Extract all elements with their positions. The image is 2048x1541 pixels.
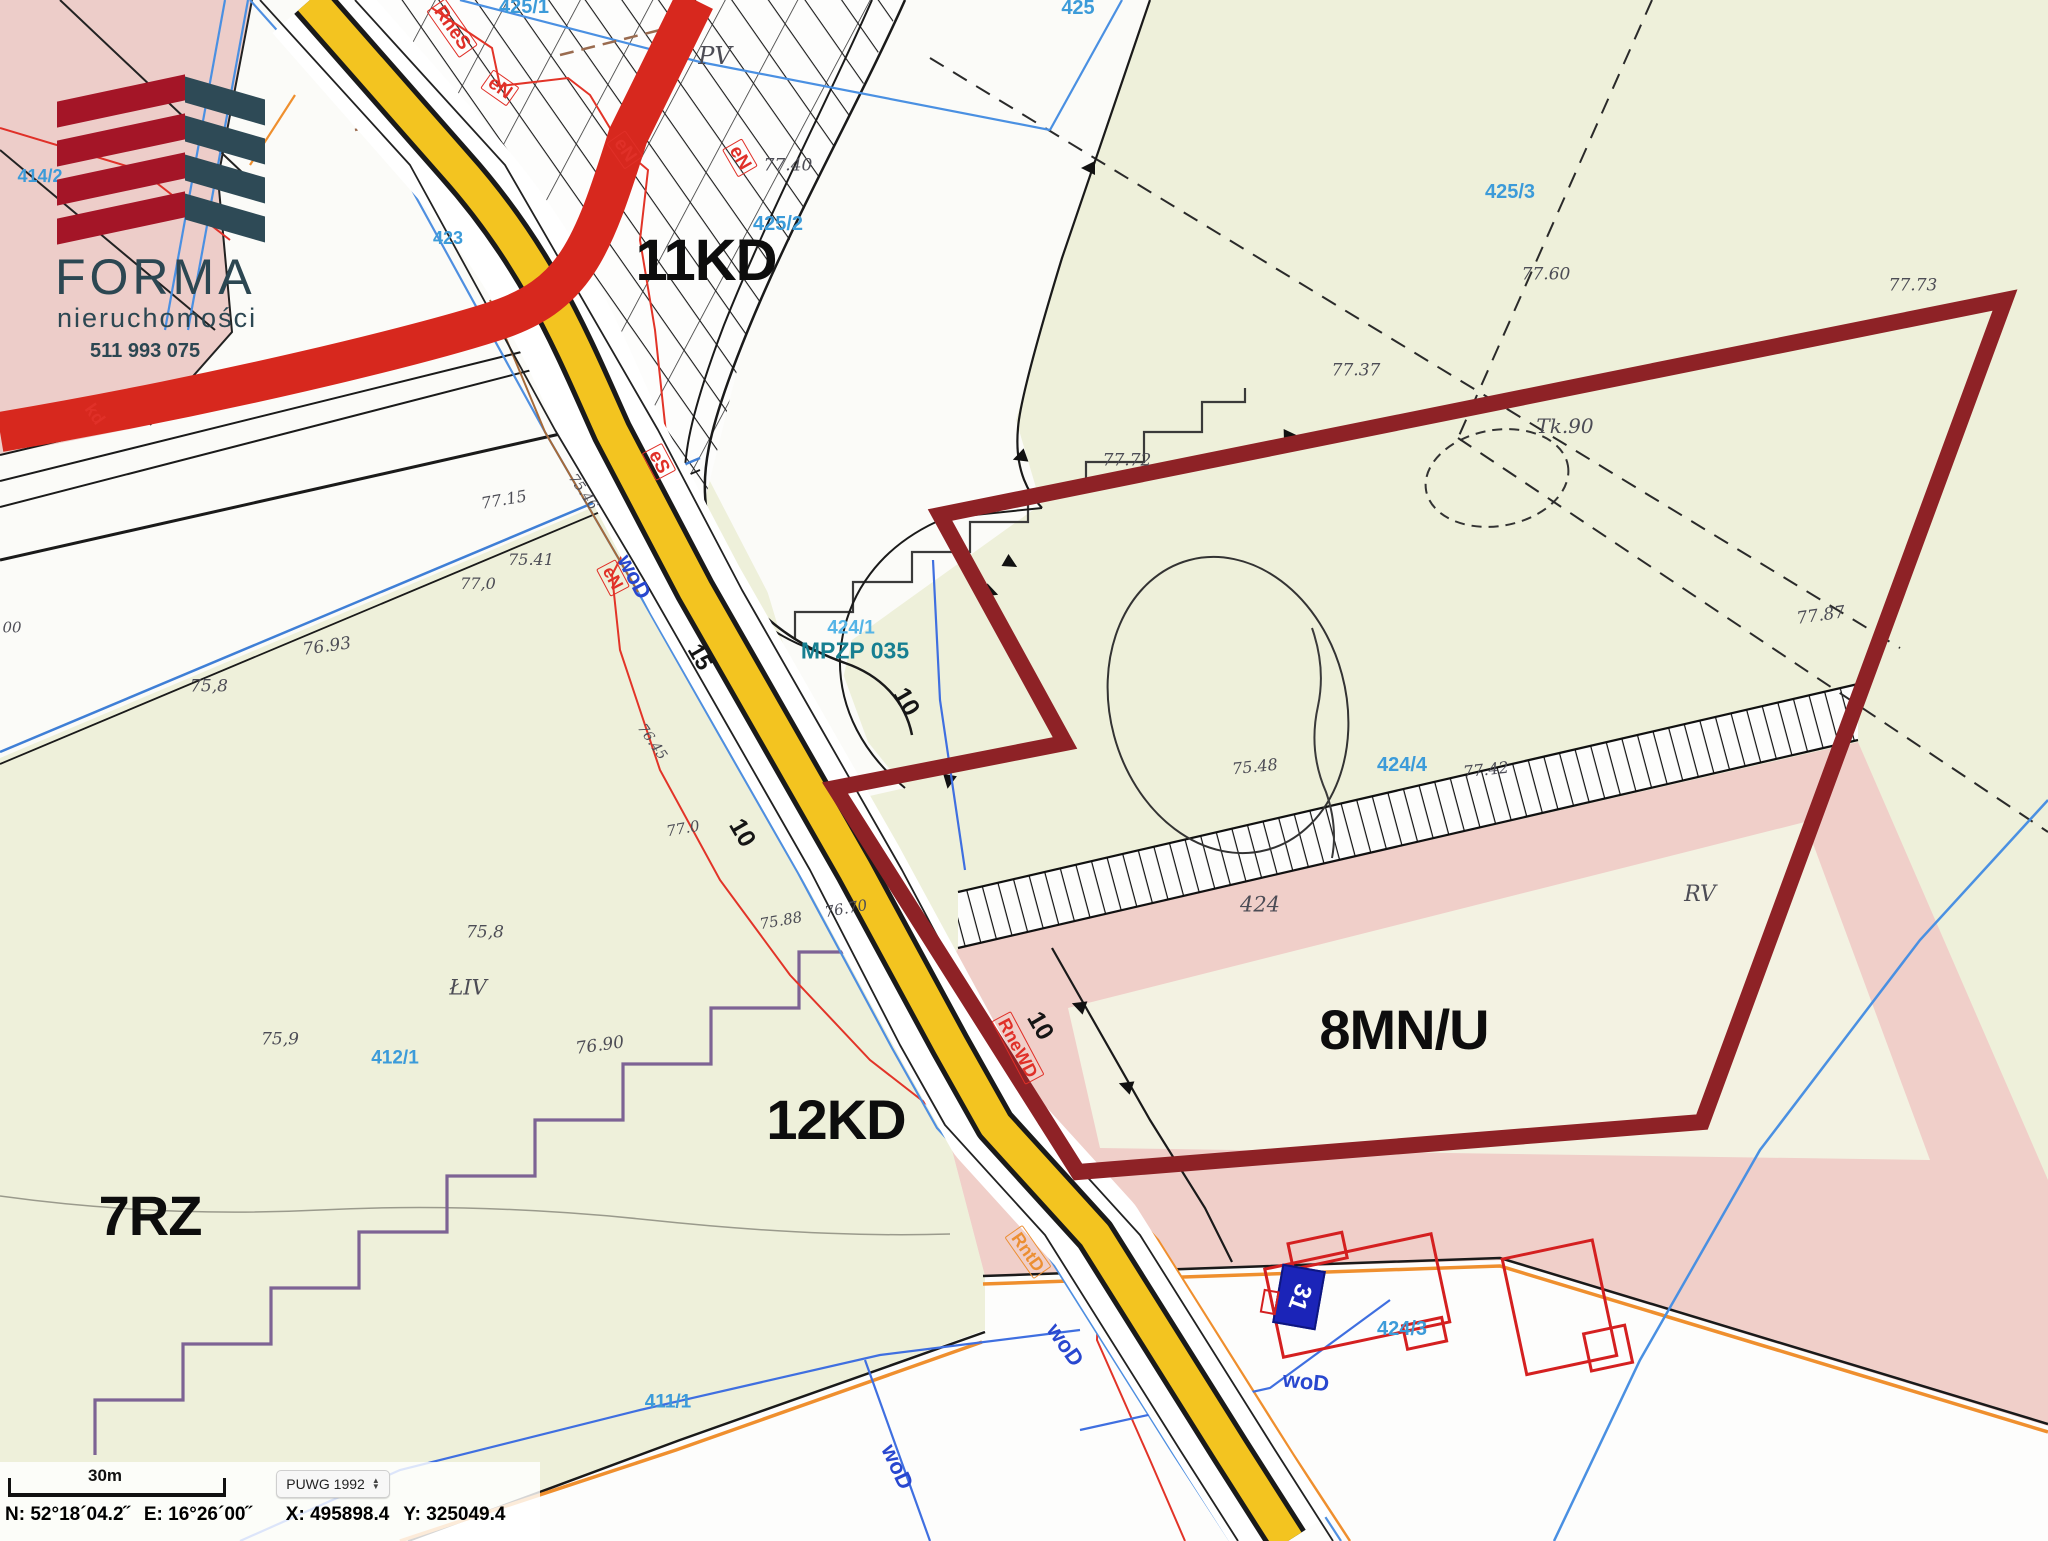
map-canvas xyxy=(0,0,2048,1541)
coord-y-value: 325049.4 xyxy=(426,1504,505,1525)
scale-label: 30m xyxy=(88,1466,122,1486)
coord-x-value: 495898.4 xyxy=(310,1504,389,1525)
agency-logo: FORMA nieruchomości 511 993 075 xyxy=(50,55,280,365)
coord-e-label: E: xyxy=(144,1504,163,1525)
map-viewport[interactable]: 11KD12KD7RZ8MN/U425425/1425/2425/3424/14… xyxy=(0,0,2048,1541)
logo-phone: 511 993 075 xyxy=(90,340,200,363)
logo-brand-text: FORMA xyxy=(55,248,256,306)
status-bar: 30m PUWG 1992 ▲▼ N: 52°18´04.2˝ E: 16°26… xyxy=(0,1462,540,1541)
coord-e-value: 16°26´00˝ xyxy=(168,1504,252,1525)
coordinates-readout: N: 52°18´04.2˝ E: 16°26´00˝ X: 495898.4 … xyxy=(5,1504,519,1526)
select-arrows-icon: ▲▼ xyxy=(372,1478,380,1490)
logo-building-icon-right xyxy=(185,77,265,256)
coord-n-value: 52°18´04.2˝ xyxy=(30,1504,130,1525)
logo-subtitle: nieruchomości xyxy=(57,303,257,334)
coord-x-label: X: xyxy=(286,1504,305,1525)
address-box-tick xyxy=(1260,1289,1280,1315)
address-number: 31 xyxy=(1281,1280,1316,1315)
coord-n-label: N: xyxy=(5,1504,25,1525)
crs-value: PUWG 1992 xyxy=(286,1476,365,1492)
logo-building-icon xyxy=(57,74,185,257)
crs-selector[interactable]: PUWG 1992 ▲▼ xyxy=(276,1470,390,1498)
coord-y-label: Y: xyxy=(403,1504,421,1525)
